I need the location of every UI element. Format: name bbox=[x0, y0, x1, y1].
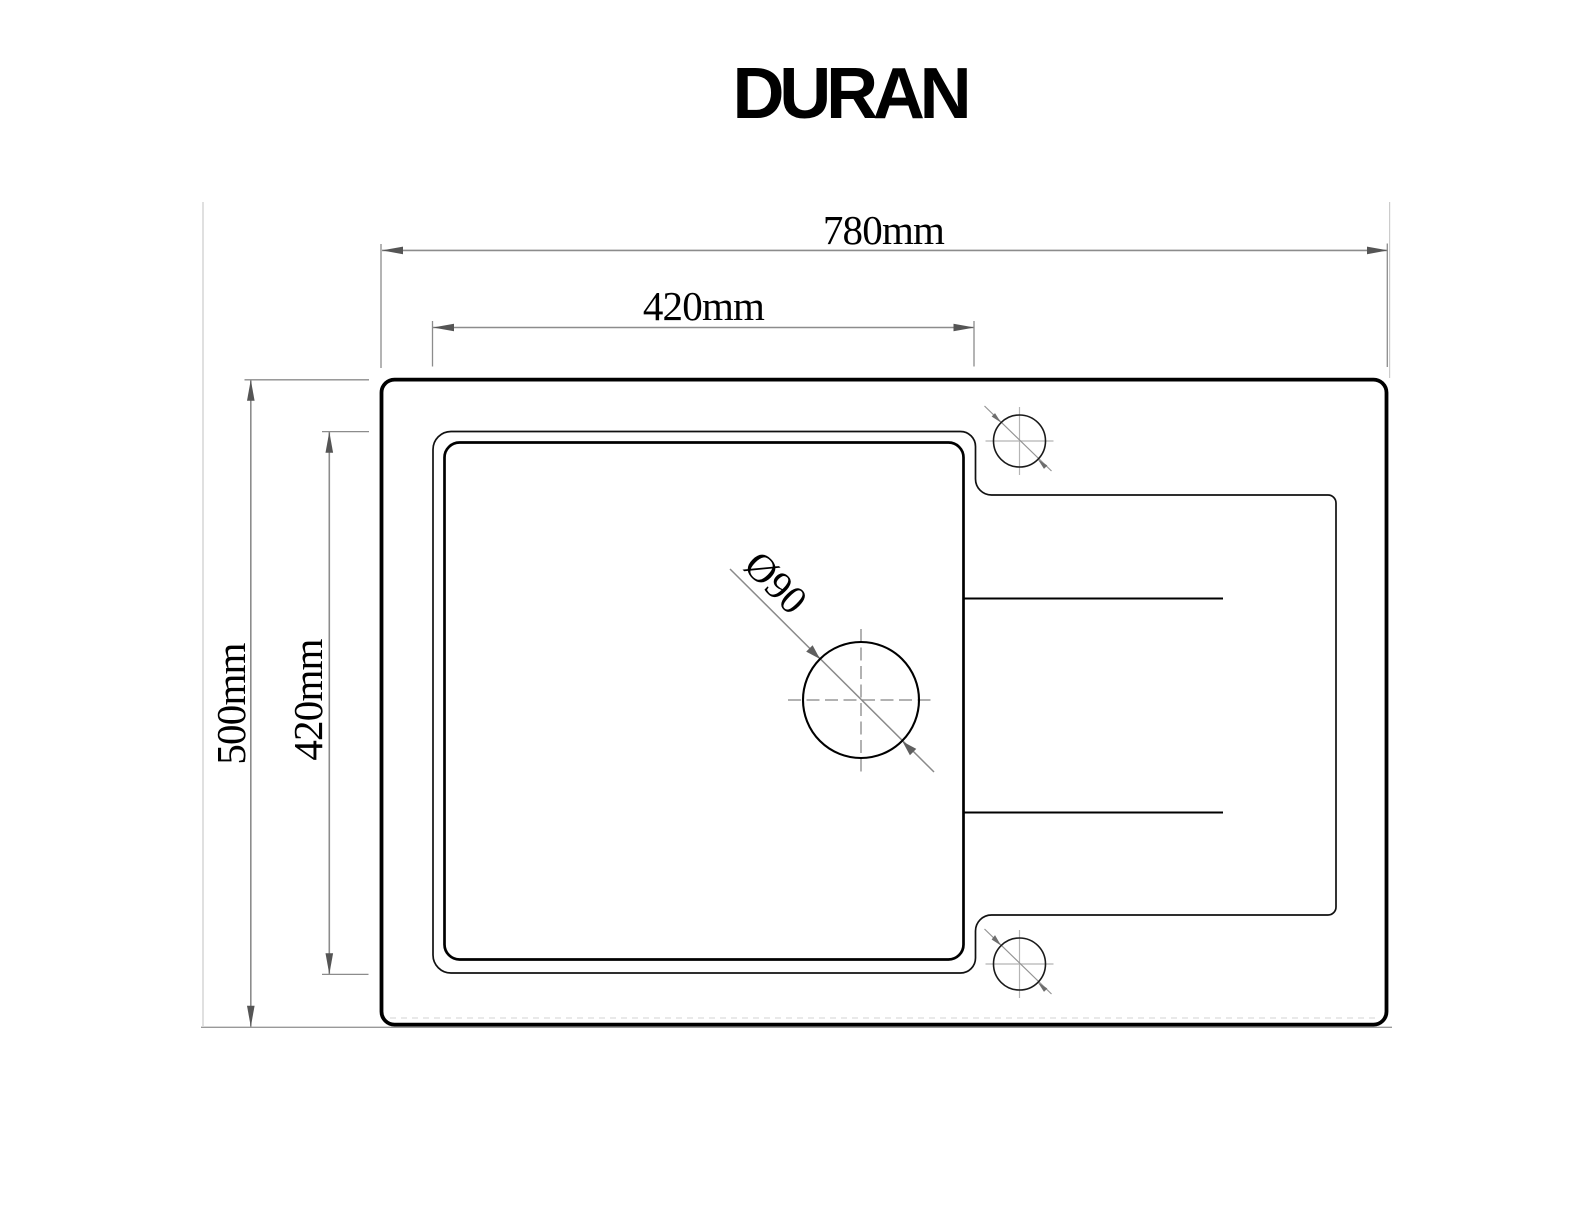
svg-text:500mm: 500mm bbox=[208, 642, 254, 764]
svg-text:420mm: 420mm bbox=[285, 638, 331, 760]
svg-text:DURAN: DURAN bbox=[733, 54, 968, 134]
svg-text:780mm: 780mm bbox=[823, 207, 945, 253]
svg-text:420mm: 420mm bbox=[643, 283, 765, 329]
